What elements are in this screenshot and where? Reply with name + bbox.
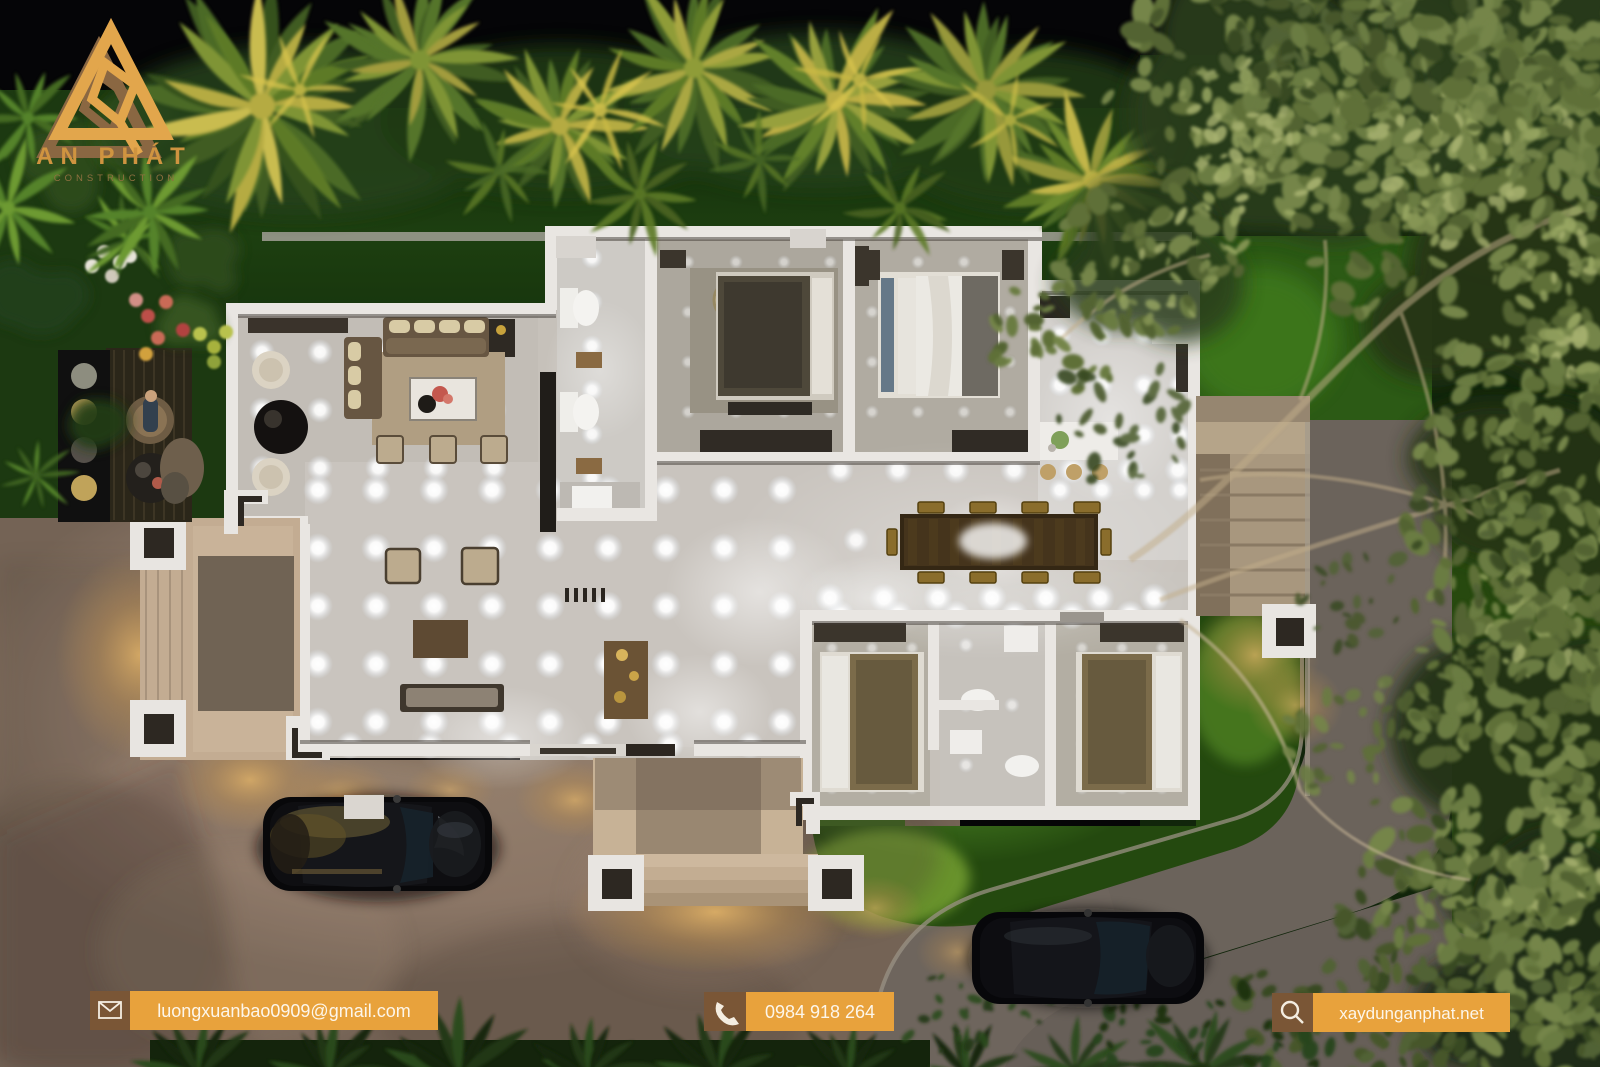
svg-text:CONSTRUCTION: CONSTRUCTION bbox=[54, 173, 179, 184]
svg-text:luongxuanbao0909@gmail.com: luongxuanbao0909@gmail.com bbox=[157, 1001, 410, 1021]
svg-text:xaydunganphat.net: xaydunganphat.net bbox=[1339, 1004, 1484, 1023]
svg-text:0984 918 264: 0984 918 264 bbox=[765, 1002, 875, 1022]
svg-text:AN PHÁT: AN PHÁT bbox=[36, 142, 192, 170]
